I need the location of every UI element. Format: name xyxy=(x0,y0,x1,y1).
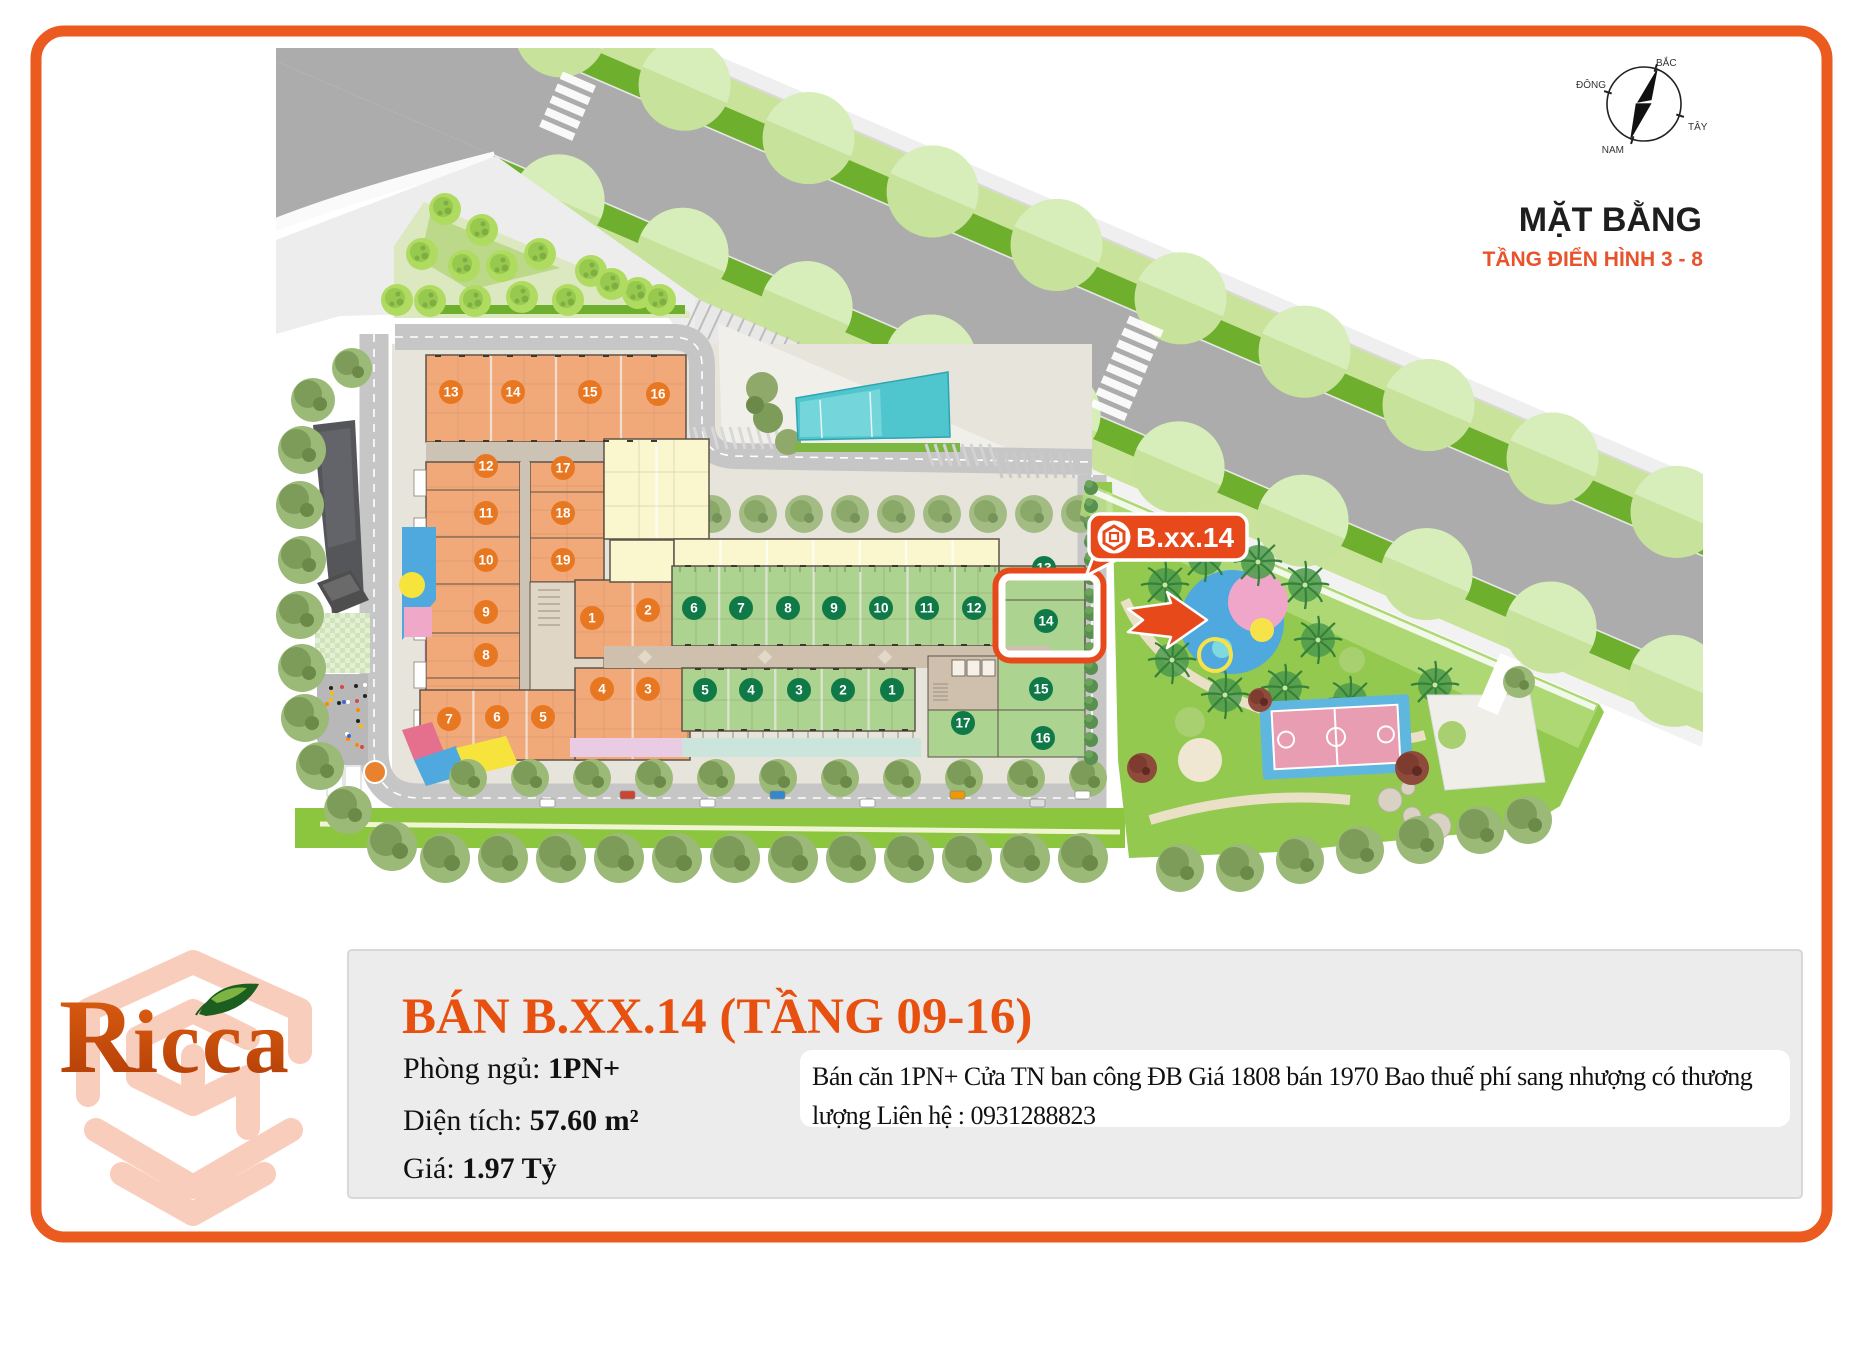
svg-text:17: 17 xyxy=(555,461,570,476)
svg-text:2: 2 xyxy=(644,603,652,618)
svg-text:ĐÔNG: ĐÔNG xyxy=(1576,78,1606,91)
svg-text:10: 10 xyxy=(873,601,888,616)
svg-text:MẶT BẰNG: MẶT BẰNG xyxy=(1519,201,1702,239)
svg-text:15: 15 xyxy=(1033,682,1049,697)
svg-text:lượng Liên hệ : 0931288823: lượng Liên hệ : 0931288823 xyxy=(812,1101,1095,1130)
svg-text:5: 5 xyxy=(701,683,709,698)
svg-text:13: 13 xyxy=(443,385,459,400)
svg-text:B.xx.14: B.xx.14 xyxy=(1136,522,1234,553)
svg-text:9: 9 xyxy=(482,605,490,620)
svg-text:4: 4 xyxy=(598,682,606,697)
svg-text:R: R xyxy=(59,978,137,1095)
svg-text:5: 5 xyxy=(539,710,547,725)
svg-text:6: 6 xyxy=(690,601,698,616)
svg-text:19: 19 xyxy=(555,553,570,568)
svg-text:1: 1 xyxy=(588,611,596,626)
svg-text:NAM: NAM xyxy=(1602,145,1624,156)
svg-text:16: 16 xyxy=(1035,731,1051,746)
svg-text:15: 15 xyxy=(582,385,598,400)
svg-text:Diện tích: 57.60 m²: Diện tích: 57.60 m² xyxy=(403,1104,639,1137)
svg-text:Phòng ngủ: 1PN+: Phòng ngủ: 1PN+ xyxy=(403,1052,620,1085)
svg-text:4: 4 xyxy=(747,683,755,698)
svg-text:8: 8 xyxy=(482,648,490,663)
svg-text:14: 14 xyxy=(1038,614,1054,629)
svg-text:TÂY: TÂY xyxy=(1688,120,1708,133)
svg-text:10: 10 xyxy=(478,553,493,568)
svg-text:3: 3 xyxy=(795,683,803,698)
svg-text:8: 8 xyxy=(784,601,792,616)
svg-text:BÁN B.XX.14 (TẦNG 09-16): BÁN B.XX.14 (TẦNG 09-16) xyxy=(402,987,1032,1045)
svg-text:Giá: 1.97 Tỷ: Giá: 1.97 Tỷ xyxy=(403,1152,557,1185)
svg-text:6: 6 xyxy=(493,710,501,725)
svg-text:18: 18 xyxy=(555,506,571,521)
svg-text:11: 11 xyxy=(479,506,494,521)
svg-text:9: 9 xyxy=(830,601,838,616)
svg-text:2: 2 xyxy=(839,683,847,698)
svg-text:12: 12 xyxy=(478,459,493,474)
svg-text:TẦNG ĐIỂN HÌNH 3 - 8: TẦNG ĐIỂN HÌNH 3 - 8 xyxy=(1482,248,1703,271)
svg-text:7: 7 xyxy=(445,712,453,727)
svg-text:16: 16 xyxy=(650,387,666,402)
svg-text:Bán căn 1PN+ Cửa TN ban công Đ: Bán căn 1PN+ Cửa TN ban công ĐB Giá 1808… xyxy=(812,1062,1753,1091)
svg-text:3: 3 xyxy=(644,682,652,697)
svg-text:17: 17 xyxy=(955,716,970,731)
svg-text:1: 1 xyxy=(888,683,896,698)
svg-text:BẮC: BẮC xyxy=(1656,56,1677,69)
svg-text:12: 12 xyxy=(966,601,981,616)
svg-text:14: 14 xyxy=(505,385,521,400)
svg-text:11: 11 xyxy=(920,601,935,616)
svg-text:7: 7 xyxy=(737,601,745,616)
